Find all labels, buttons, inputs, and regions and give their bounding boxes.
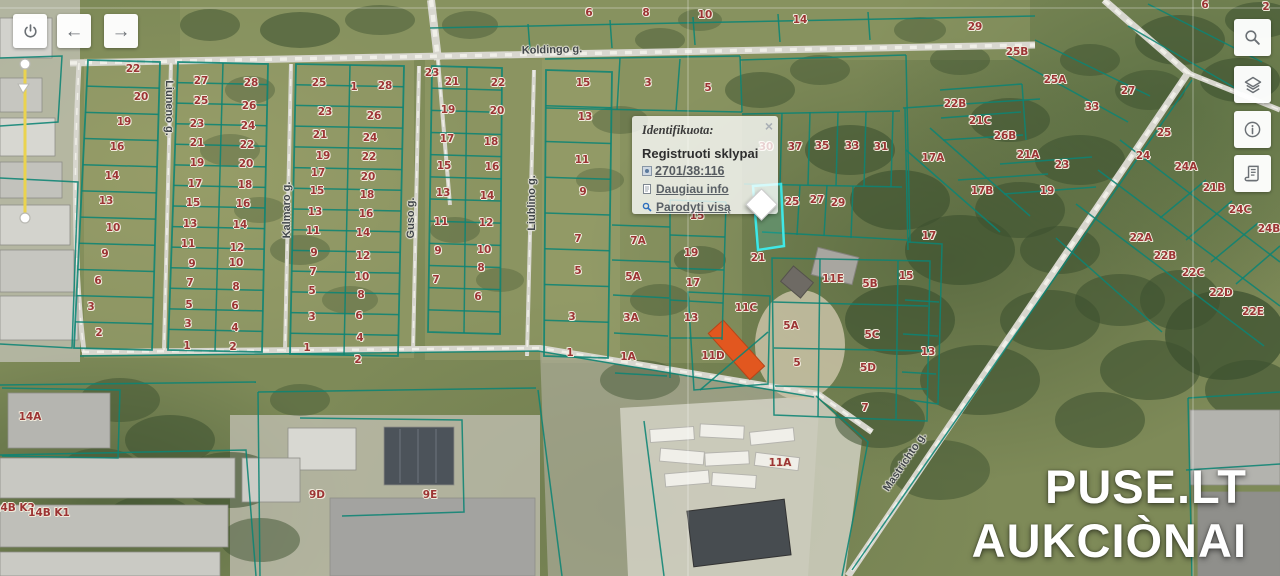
power-icon: [22, 23, 39, 40]
layers-button[interactable]: [1234, 66, 1271, 103]
info-button[interactable]: [1234, 111, 1271, 148]
parcel-marker-icon: [642, 166, 652, 176]
parcel-boundaries-overlay: [0, 0, 1280, 576]
popup-title: Identifikuota:: [642, 123, 768, 138]
close-icon[interactable]: ×: [765, 119, 773, 133]
power-button[interactable]: [13, 14, 47, 48]
map-viewport[interactable]: 2220191614131096322725232119171513119753…: [0, 0, 1280, 576]
arrow-right-icon: →: [112, 22, 131, 41]
forward-button[interactable]: →: [104, 14, 138, 48]
search-button[interactable]: [1234, 19, 1271, 56]
popup-subtitle: Registruoti sklypai: [642, 146, 768, 161]
layers-icon: [1243, 75, 1263, 95]
info-icon: [1243, 120, 1262, 139]
parcel-number-link[interactable]: 2701/38:116: [655, 164, 725, 178]
more-info-link[interactable]: Daugiau info: [656, 182, 729, 196]
document-icon: [642, 184, 652, 194]
back-button[interactable]: ←: [57, 14, 91, 48]
show-all-link[interactable]: Parodyti visą: [656, 200, 731, 214]
search-icon: [1243, 28, 1262, 47]
legend-icon: [1243, 164, 1262, 183]
magnifier-icon: [642, 202, 652, 212]
arrow-left-icon: ←: [65, 22, 84, 41]
legend-button[interactable]: [1234, 155, 1271, 192]
